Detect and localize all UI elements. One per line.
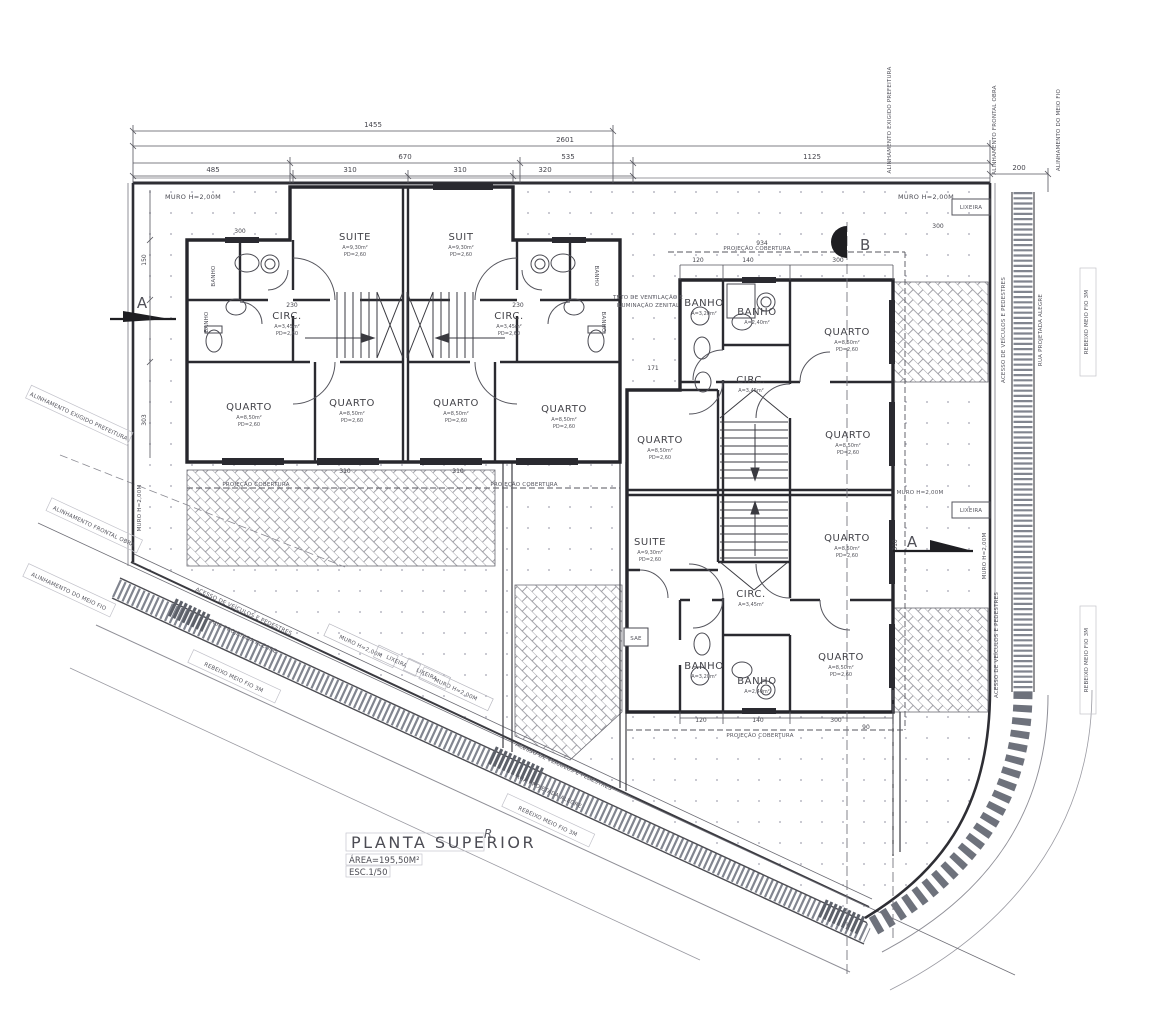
room-quarto-rmid-l-area: A=8,50m² <box>647 448 673 454</box>
room-quarto-3-pd: PD=2,60 <box>445 418 467 424</box>
room-quarto-rb-r-pd: PD=2,60 <box>836 553 858 559</box>
dim-310d: 310 <box>452 468 464 475</box>
room-quarto-4-pd: PD=2,60 <box>553 424 575 430</box>
room-quarto-rmid-l-pd: PD=2,60 <box>649 455 671 461</box>
dim-310e: 310 <box>892 539 899 551</box>
teto-ventilacao-line1: TETO DE VENTILAÇÃO E <box>612 294 683 301</box>
acesso-label-right-2: ACESSO DE VEÍCULOS E PEDESTRES <box>993 592 1000 698</box>
projecao-label-bottom: PROJEÇÃO COBERTURA <box>726 732 793 739</box>
room-suite-rb-pd: PD=2,60 <box>639 557 661 563</box>
room-suite-1-area: A=9,30m² <box>342 245 368 251</box>
room-quarto-rmid-r: QUARTO <box>825 430 871 441</box>
dim-171: 171 <box>647 365 659 372</box>
dim-120b: 120 <box>695 717 707 724</box>
room-suite-rb: SUITE <box>634 537 666 548</box>
dim-310b: 310 <box>453 166 466 174</box>
room-banho-l4: BANHO <box>600 311 606 333</box>
dim-300d: 300 <box>830 717 842 724</box>
room-quarto-1: QUARTO <box>226 402 272 413</box>
room-quarto-2-area: A=8,50m² <box>339 411 365 417</box>
dim-485: 485 <box>206 166 219 174</box>
muro-label-top-left: MURO H=2,00M <box>165 193 221 201</box>
floor-plan-drawing: A B A 1455 2601 670 535 1125 485 310 310… <box>0 0 1170 1012</box>
room-quarto-rb-r: QUARTO <box>824 533 870 544</box>
section-marker-b: B <box>860 236 870 254</box>
room-circ-rt: CIRC. <box>736 375 766 386</box>
dim-1125: 1125 <box>803 153 821 161</box>
dim-300a: 300 <box>234 228 246 235</box>
room-quarto-3-area: A=8,50m² <box>443 411 469 417</box>
room-quarto-4-area: A=8,50m² <box>551 417 577 423</box>
dim-310c: 310 <box>339 468 351 475</box>
room-suite-1-pd: PD=2,60 <box>344 252 366 258</box>
room-circ-left2-pd: PD=2,60 <box>498 331 520 337</box>
section-marker-a-right: A <box>907 533 918 551</box>
room-circ-left2-area: A=3,45m² <box>496 324 522 330</box>
room-quarto-rbot-pd: PD=2,60 <box>830 672 852 678</box>
room-quarto-1-pd: PD=2,60 <box>238 422 260 428</box>
room-quarto-3: QUARTO <box>433 398 479 409</box>
room-quarto-2: QUARTO <box>329 398 375 409</box>
dim-300b: 300 <box>932 223 944 230</box>
drawing-title: PLANTA SUPERIOR <box>351 833 536 852</box>
room-banho-rt2: BANHO <box>737 307 777 318</box>
driveway-hatch-right-bottom <box>893 608 988 712</box>
room-quarto-rt-pd: PD=2,60 <box>836 347 858 353</box>
room-banho-rt2-area: A=2,40m² <box>744 320 770 326</box>
acesso-label-right: ACESSO DE VEÍCULOS E PEDESTRES <box>1000 277 1007 383</box>
alinhamento-meio-fio-left: ALINHAMENTO DO MEIO FIO <box>30 572 107 612</box>
projecao-label-top: PROJEÇÃO COBERTURA <box>723 245 790 252</box>
dim-310a: 310 <box>343 166 356 174</box>
dim-2601: 2601 <box>556 136 574 144</box>
dim-150: 150 <box>141 254 148 266</box>
projecao-label-left-2: PROJEÇÃO COBERTURA <box>490 481 557 488</box>
room-circ-rt-area: A=3,45m² <box>738 388 764 394</box>
dim-200: 200 <box>1012 164 1025 172</box>
driveway-hatch-right-top <box>893 282 988 382</box>
muro-label-left-vertical: MURO H=2,00M <box>137 485 143 532</box>
dim-90: 90 <box>862 724 870 731</box>
room-banho-l1: BANHO <box>211 265 217 287</box>
rebaixo-label-right-1: REBEIXO MEIO FIO 3M <box>1084 290 1090 355</box>
dim-1455: 1455 <box>364 121 382 129</box>
room-circ-left: CIRC. <box>272 311 302 322</box>
room-quarto-rmid-r-pd: PD=2,60 <box>837 450 859 456</box>
room-quarto-4: QUARTO <box>541 404 587 415</box>
room-banho-l3: BANHO <box>593 265 599 287</box>
room-banho-rt1: BANHO <box>684 298 724 309</box>
dim-320: 320 <box>538 166 551 174</box>
room-circ-left-pd: PD=2,60 <box>276 331 298 337</box>
floor-plan-sheet: A B A 1455 2601 670 535 1125 485 310 310… <box>0 0 1170 1012</box>
alinhamento-frontal-right: ALINHAMENTO FRONTAL OBRA <box>992 85 998 174</box>
dim-230a: 230 <box>286 302 298 309</box>
drawing-area: ÁREA=195,50M² <box>349 854 420 866</box>
dim-303: 303 <box>141 414 148 426</box>
lixeira-label-top-right: LIXEIRA <box>960 205 982 211</box>
room-quarto-rbot-area: A=8,50m² <box>828 665 854 671</box>
room-banho-rb2-area: A=2,40m² <box>744 689 770 695</box>
room-suite-1: SUITE <box>339 232 371 243</box>
room-quarto-2-pd: PD=2,60 <box>341 418 363 424</box>
alinhamento-prefeitura-right: ALINHAMENTO EXIGIDO PREFEITURA <box>887 67 893 174</box>
room-banho-rb2: BANHO <box>737 676 777 687</box>
dim-300c: 300 <box>832 257 844 264</box>
room-quarto-rt-area: A=8,50m² <box>834 340 860 346</box>
room-suite-rb-area: A=9,30m² <box>637 550 663 556</box>
room-banho-l2: BANHO <box>204 311 210 333</box>
room-circ-left2: CIRC. <box>494 311 524 322</box>
section-marker-a-left: A <box>137 294 148 312</box>
muro-label-right-vertical: MURO H=2,00M <box>982 533 988 580</box>
room-quarto-rmid-r-area: A=8,50m² <box>835 443 861 449</box>
dim-140b: 140 <box>752 717 764 724</box>
room-quarto-1-area: A=8,50m² <box>236 415 262 421</box>
room-quarto-rt: QUARTO <box>824 327 870 338</box>
dim-140a: 140 <box>742 257 754 264</box>
room-suit-2: SUIT <box>448 232 473 243</box>
room-circ-rb-area: A=3,45m² <box>738 602 764 608</box>
muro-label-mid-right: MURO H=2,00M <box>897 490 944 496</box>
room-quarto-rmid-l: QUARTO <box>637 435 683 446</box>
room-banho-rb1: BANHO <box>684 661 724 672</box>
projecao-label-left-1: PROJEÇÃO COBERTURA <box>222 481 289 488</box>
lixeira-label-mid-right: LIXEIRA <box>960 508 982 514</box>
title-block: PLANTA SUPERIOR ÁREA=195,50M² ESC.1/50 R <box>346 827 536 878</box>
rebaixo-label-right-2: REBEIXO MEIO FIO 3M <box>1084 628 1090 693</box>
room-suit-2-area: A=9,30m² <box>448 245 474 251</box>
dim-120a: 120 <box>692 257 704 264</box>
room-quarto-rb-r-area: A=8,50m² <box>834 546 860 552</box>
dim-670: 670 <box>398 153 411 161</box>
alinhamento-frontal-left: ALINHAMENTO FRONTAL OBRA <box>52 505 136 548</box>
room-circ-left-area: A=3,45m² <box>274 324 300 330</box>
room-quarto-rbot: QUARTO <box>818 652 864 663</box>
room-suit-2-pd: PD=2,60 <box>450 252 472 258</box>
room-banho-rb1-area: A=3,20m² <box>691 674 717 680</box>
alinhamento-prefeitura-left: ALINHAMENTO EXIGIDO PREFEITURA <box>29 392 128 443</box>
alinhamento-meio-fio-right: ALINHAMENTO DO MEIO FIO <box>1056 88 1062 171</box>
muro-label-top-right: MURO H=2,00M <box>898 193 954 201</box>
teto-ventilacao-line2: ILUMINAÇÃO ZENITAL <box>617 302 680 309</box>
room-circ-rb: CIRC. <box>736 589 766 600</box>
rua-label-right: RUA PROJETADA ALEGRE <box>1038 294 1044 366</box>
curve-radius-mark: R <box>484 827 492 841</box>
dim-230b: 230 <box>512 302 524 309</box>
drawing-scale: ESC.1/50 <box>349 868 388 878</box>
room-banho-rt1-area: A=3,20m² <box>691 311 717 317</box>
dim-535: 535 <box>561 153 574 161</box>
sae-label: SAE <box>630 636 642 642</box>
